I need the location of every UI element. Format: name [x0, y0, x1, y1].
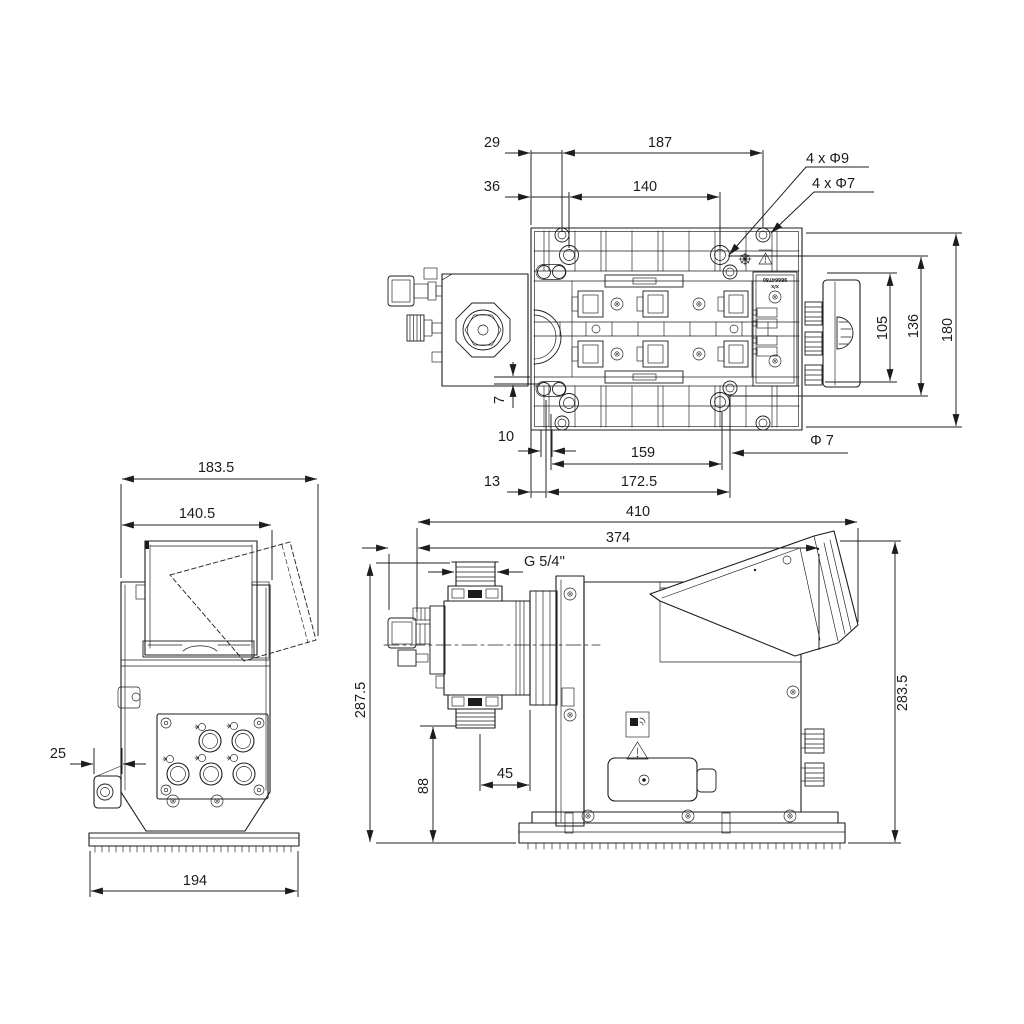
dim-29: 29 [484, 135, 500, 151]
dosing-head-side [384, 562, 600, 728]
dim-25: 25 [50, 746, 66, 762]
dim-10: 10 [498, 429, 514, 445]
nameplate-line1: x/x [770, 283, 779, 289]
drawing-canvas: x/x 98664780 [0, 0, 1024, 1024]
cable-glands-top [805, 302, 822, 385]
pump-body-front [118, 582, 270, 831]
dim-183-5: 183.5 [198, 460, 234, 476]
cable-glands-side [801, 729, 824, 786]
vent-valve-top [407, 315, 442, 341]
warning-label-icon [626, 712, 649, 759]
dim-7: 7 [492, 396, 508, 404]
mounting-holes [536, 228, 770, 430]
connector-plate [157, 714, 268, 799]
head-connection-octagon [456, 303, 510, 357]
dim-374: 374 [606, 530, 630, 546]
nameplate: x/x 98664780 [763, 276, 787, 289]
nameplate-line2: 98664780 [763, 276, 787, 282]
control-cover-top [805, 280, 860, 387]
callout-4xd7: 4 x Φ7 [812, 176, 855, 192]
dim-136: 136 [906, 314, 922, 338]
front-view: 183.5 140.5 25 194 [50, 460, 318, 897]
technical-drawing: x/x 98664780 [0, 0, 1024, 1024]
warning-triangle-icon [759, 250, 772, 264]
top-view: x/x 98664780 [388, 135, 962, 498]
cable-gland-top [388, 268, 442, 306]
dim-88: 88 [416, 778, 432, 794]
gear-icon [739, 253, 751, 265]
side-view: 410 374 G 5/4'' 287.5 283.5 88 45 [353, 504, 911, 849]
control-panel-side [650, 531, 858, 656]
dim-287-5: 287.5 [353, 682, 369, 718]
dim-187: 187 [648, 135, 672, 151]
base-plate-side [519, 810, 845, 849]
wall-bracket [94, 766, 121, 808]
cable-gland-side [388, 606, 445, 674]
control-panel-open-dashed [170, 542, 316, 661]
dim-283-5: 283.5 [895, 675, 911, 711]
plate-center-features: x/x 98664780 [572, 272, 797, 386]
base-plate-front [89, 833, 299, 852]
dim-180: 180 [940, 318, 956, 342]
dim-36: 36 [484, 179, 500, 195]
dim-194: 194 [183, 873, 207, 889]
callout-4xd9: 4 x Φ9 [806, 151, 849, 167]
dim-172-5: 172.5 [621, 474, 657, 490]
mounting-plate [531, 228, 802, 430]
callout-dia7: Φ 7 [810, 433, 834, 449]
dim-140: 140 [633, 179, 657, 195]
dim-105: 105 [875, 316, 891, 340]
dim-410: 410 [626, 504, 650, 520]
control-panel-front [136, 541, 269, 658]
dim-140-5: 140.5 [179, 506, 215, 522]
dim-13: 13 [484, 474, 500, 490]
thread-label: G 5/4'' [524, 554, 565, 570]
dim-45: 45 [497, 766, 513, 782]
dosing-head-top [388, 268, 528, 386]
top-view-dimensions: 29 187 36 140 4 x Φ9 4 x Φ7 105 136 180 … [484, 135, 962, 498]
drain-plate [608, 758, 716, 801]
dim-159: 159 [631, 445, 655, 461]
